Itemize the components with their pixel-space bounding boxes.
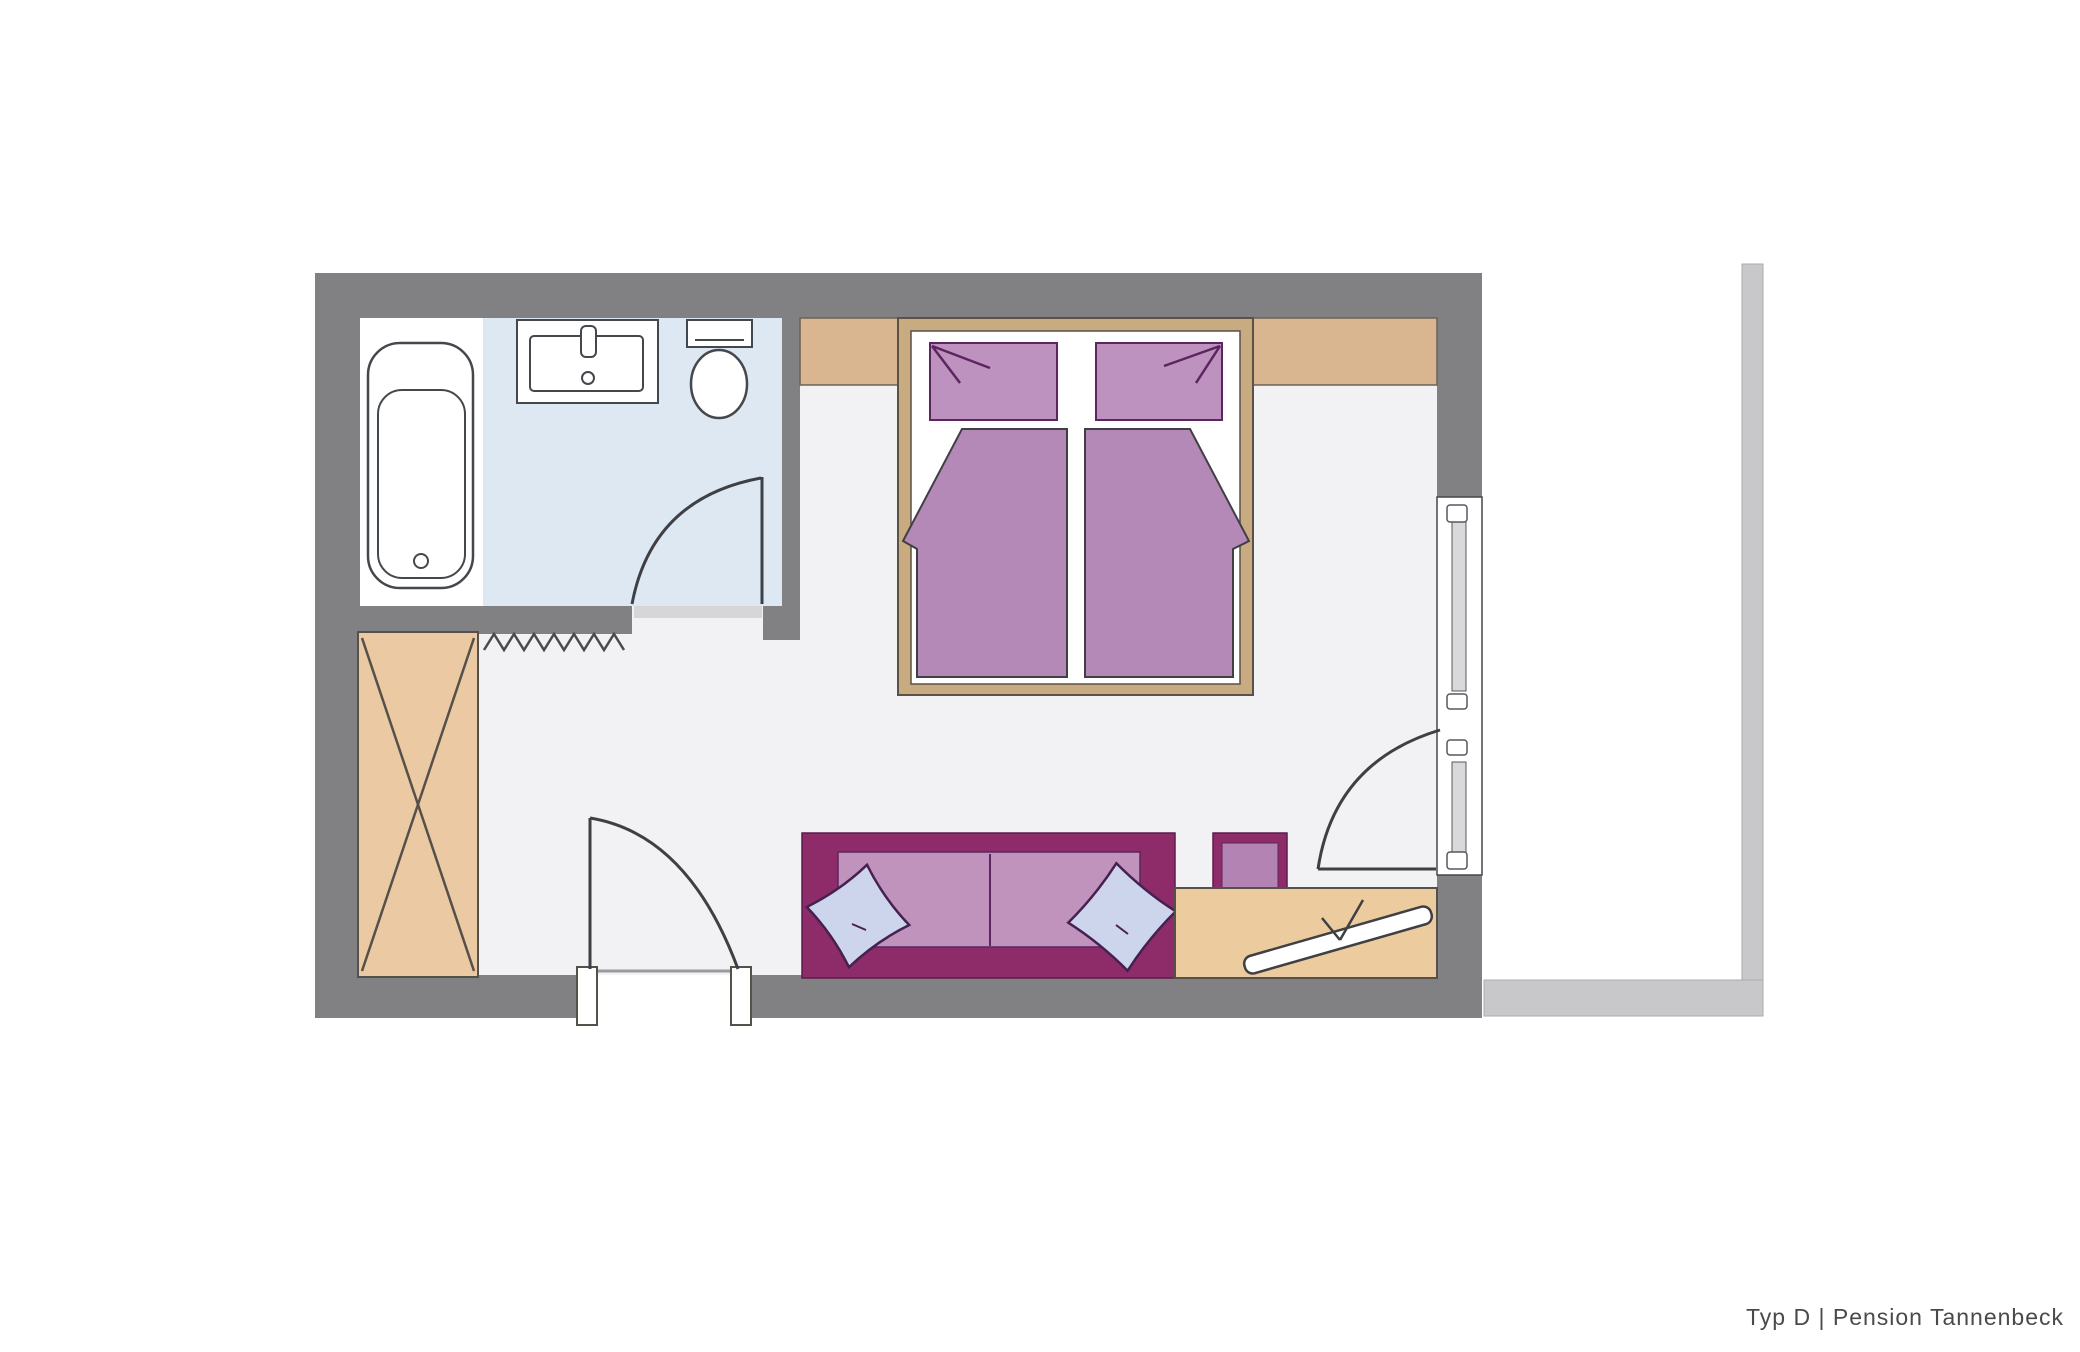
wardrobe: [358, 632, 478, 977]
side-table-top: [1222, 843, 1278, 889]
balcony-rail-horizontal: [1484, 980, 1763, 1016]
wall-bathroom-bottom: [315, 606, 632, 634]
bathroom-door-threshold: [634, 606, 762, 618]
window: [1437, 497, 1482, 875]
wall-bathroom-divider: [782, 318, 800, 608]
bathtub-drain: [414, 554, 428, 568]
washbasin: [517, 320, 658, 403]
toilet-cistern: [687, 320, 752, 347]
sofa: [798, 833, 1182, 978]
desk: [1175, 888, 1437, 978]
toilet: [687, 320, 752, 418]
wall-left: [315, 273, 360, 1018]
bathtub-inner: [378, 390, 465, 578]
wall-right-below-window: [1437, 875, 1482, 978]
wall-bottom-right-of-door: [745, 975, 1482, 1018]
entry-door-jamb-right: [731, 967, 751, 1025]
toilet-bowl: [691, 350, 747, 418]
window-glazing-lower: [1452, 762, 1466, 852]
balcony-rail: [1484, 264, 1763, 1016]
plan-caption: Typ D | Pension Tannenbeck: [1746, 1304, 2064, 1331]
side-table: [1213, 833, 1287, 889]
wall-bathroom-bottom-stub: [763, 606, 800, 640]
window-glazing-upper: [1452, 521, 1466, 691]
headboard-shelf-left: [800, 318, 898, 385]
headboard-shelf-right: [1253, 318, 1437, 385]
washbasin-faucet: [581, 326, 596, 357]
floor-plan-drawing: [0, 0, 2080, 1352]
washbasin-drain: [582, 372, 594, 384]
wall-bottom-left-of-door: [315, 975, 583, 1018]
window-handle-bottom: [1447, 852, 1467, 869]
entry-door-jamb-left: [577, 967, 597, 1025]
bed-pillow-left: [930, 343, 1057, 420]
window-handle-middle-1: [1447, 694, 1467, 709]
floor-plan-page: Typ D | Pension Tannenbeck: [0, 0, 2080, 1352]
window-handle-middle-2: [1447, 740, 1467, 755]
wall-top: [315, 273, 1482, 318]
window-handle-top: [1447, 505, 1467, 522]
bed-pillow-right: [1096, 343, 1222, 420]
wall-right-above-window: [1437, 318, 1482, 497]
balcony-rail-vertical: [1742, 264, 1763, 1015]
bathtub: [368, 343, 473, 588]
